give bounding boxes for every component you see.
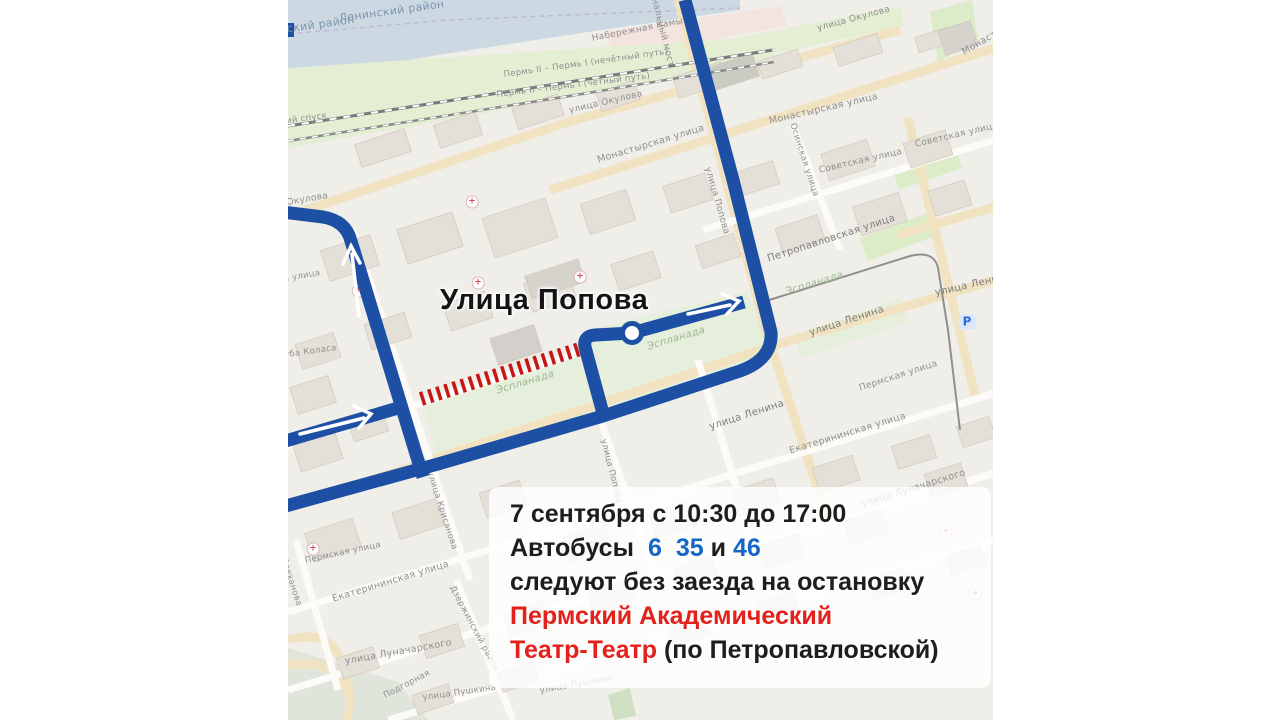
- stop-name-annotation: Улица Попова: [440, 284, 648, 317]
- stop-name-line-1: Пермский Академический: [510, 599, 991, 633]
- announcement-date-line: 7 сентября с 10:30 до 17:00: [510, 497, 991, 531]
- buses-word: Автобусы: [510, 534, 634, 562]
- via-street-note: (по Петропавловской): [664, 636, 939, 664]
- closed-section-hatch: [421, 348, 583, 399]
- bus-route-line: [288, 0, 771, 507]
- city-map: Улица Попова 7 сентября с 10:30 до 17:00…: [288, 0, 993, 720]
- and-word: и: [711, 534, 726, 562]
- bus-number-46: 46: [733, 534, 761, 562]
- bus-stop-marker: [623, 324, 642, 343]
- bus-number-35: 35: [676, 534, 704, 562]
- infographic-canvas: { "map": { "annotation": "Улица Попова",…: [0, 0, 1280, 720]
- announcement-buses-line: Автобусы635 и 46: [510, 531, 991, 565]
- announcement-card: 7 сентября с 10:30 до 17:00 Автобусы635 …: [489, 487, 991, 688]
- stop-name-line-2: Театр-Театр (по Петропавловской): [510, 633, 991, 667]
- announcement-detour-line: следуют без заезда на остановку: [510, 565, 991, 599]
- theatre-name: Театр-Театр: [510, 636, 657, 664]
- bus-number-6: 6: [648, 534, 662, 562]
